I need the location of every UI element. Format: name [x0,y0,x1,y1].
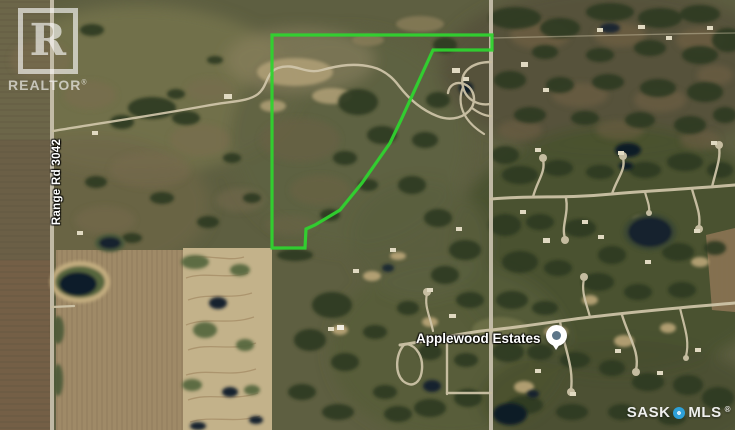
registered-mark: ® [81,79,87,86]
mls-text-mls: MLS [688,404,721,421]
place-pin-icon [546,325,567,352]
place-label-group: Applewood Estates [416,325,567,352]
place-label: Applewood Estates [416,331,541,346]
realtor-logo-icon: R [18,8,78,74]
realtor-watermark: R REALTOR® [8,8,88,93]
road-label: Range Rd 3042 [51,139,63,225]
mls-text-sask: SASK [627,404,671,421]
sask-mls-watermark: SASK MLS ® [627,404,731,421]
pin-dot [552,331,561,340]
mls-registered-mark: ® [725,405,731,414]
realtor-wordmark: REALTOR® [8,77,88,93]
realtor-logo-letter: R [29,19,66,63]
pin-tail [552,344,560,350]
map-canvas [0,0,735,430]
mls-logo-icon [673,407,685,419]
satellite-listing-map: R REALTOR® Range Rd 3042 Applewood Estat… [0,0,735,430]
